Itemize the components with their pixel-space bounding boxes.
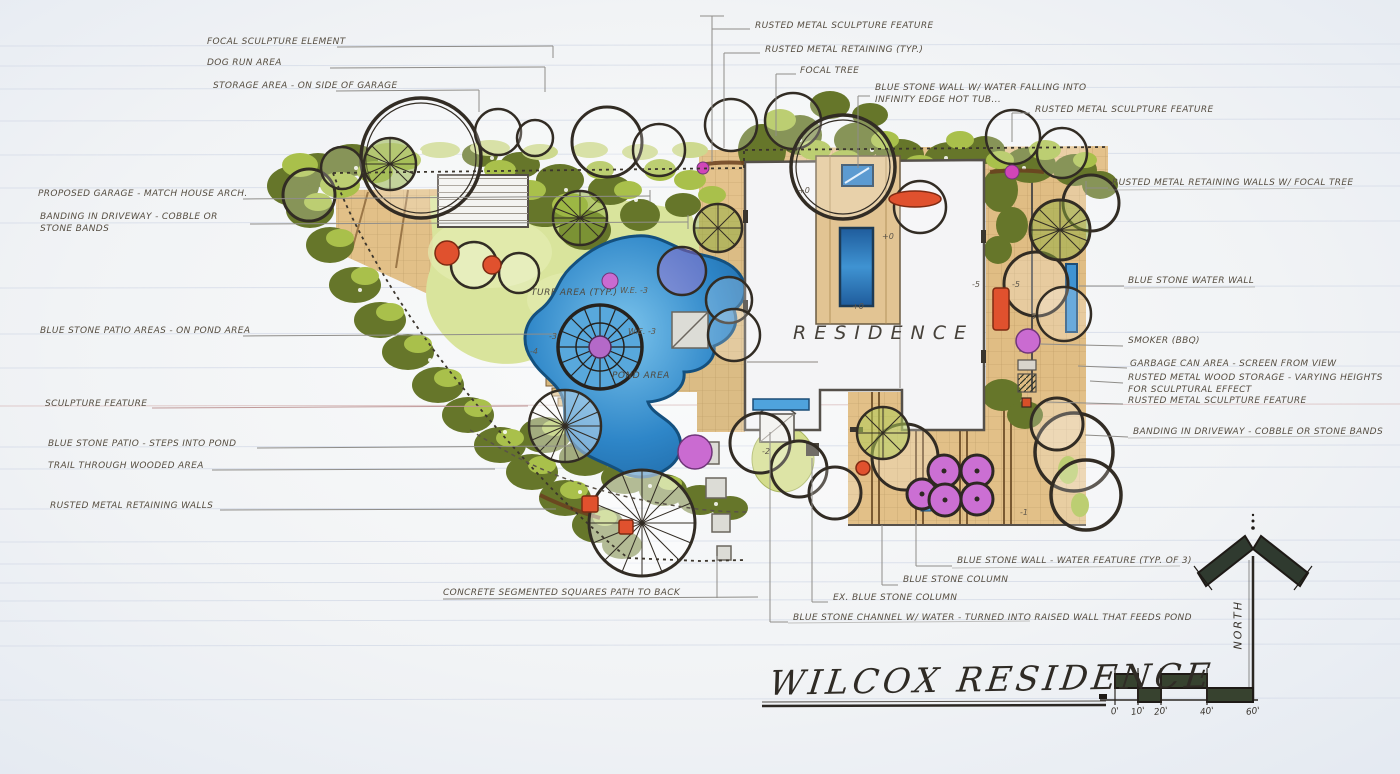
landscape-plan-sheet: { "title": { "text": "WILCOX RESIDENCE" … <box>0 0 1400 774</box>
annotation-rusted-sculpture-top: RUSTED METAL SCULPTURE FEATURE <box>755 21 934 33</box>
annotation-concrete-path: CONCRETE SEGMENTED SQUARES PATH TO BACK <box>443 588 680 600</box>
turf-area-label: TURF AREA (TYP.) <box>531 288 618 298</box>
annotation-focal-tree: FOCAL TREE <box>800 66 859 78</box>
annotation-ex-blue-stone-column: EX. BLUE STONE COLUMN <box>833 593 957 605</box>
annotation-rusted-retaining-typ: RUSTED METAL RETAINING (TYP.) <box>765 45 923 57</box>
annotation-sculpture-feature: SCULPTURE FEATURE <box>45 399 147 411</box>
annotation-blue-stone-channel: BLUE STONE CHANNEL W/ WATER - TURNED INT… <box>793 613 1192 625</box>
lap-pool <box>840 228 873 306</box>
annotation-focal-sculpture-element: FOCAL SCULPTURE ELEMENT <box>207 37 346 49</box>
annotation-trail-wooded-area: TRAIL THROUGH WOODED AREA <box>48 461 204 473</box>
annotation-proposed-garage: PROPOSED GARAGE - MATCH HOUSE ARCH. <box>38 189 248 201</box>
water-elevation-marker: W.E. -3 <box>628 327 656 336</box>
annotation-blue-stone-patio-areas: BLUE STONE PATIO AREAS - ON POND AREA <box>40 326 250 338</box>
sheet-title: WILCOX RESIDENCE <box>767 656 1216 704</box>
annotation-banding-driveway-left: BANDING IN DRIVEWAY - COBBLE OR STONE BA… <box>40 212 245 235</box>
elevation-marker: -4 <box>530 347 538 356</box>
annotation-rusted-wood-storage: RUSTED METAL WOOD STORAGE - VARYING HEIG… <box>1128 373 1383 396</box>
garbage-area-glyph <box>1018 360 1036 370</box>
residence-label: RESIDENCE <box>793 322 974 344</box>
annotation-garbage-can-area: GARBAGE CAN AREA - SCREEN FROM VIEW <box>1130 359 1337 371</box>
elevation-marker: -5 <box>972 280 980 289</box>
annotation-rusted-retaining-walls: RUSTED METAL RETAINING WALLS <box>50 501 213 513</box>
plan-sheet: FOCAL SCULPTURE ELEMENT DOG RUN AREA STO… <box>0 0 1400 774</box>
pond-area-label: POND AREA <box>612 371 670 381</box>
annotation-blue-stone-wall-water-feature: BLUE STONE WALL - WATER FEATURE (TYP. OF… <box>957 556 1192 568</box>
elevation-marker: -5 <box>1012 280 1020 289</box>
annotation-blue-stone-wall-hot-tub: BLUE STONE WALL W/ WATER FALLING INTO IN… <box>875 83 1095 106</box>
elevation-marker: -5 <box>1028 312 1036 321</box>
wood-storage-glyph <box>1018 374 1036 392</box>
water-elevation-marker: W.E. -3 <box>620 286 648 295</box>
elevation-marker: -1 <box>1020 508 1028 517</box>
annotation-smoker-bbq: SMOKER (BBQ) <box>1128 336 1200 348</box>
north-arrow-label: NORTH <box>1232 580 1245 650</box>
annotation-banding-driveway-right: BANDING IN DRIVEWAY - COBBLE OR STONE BA… <box>1133 427 1383 439</box>
elevation-marker: +0 <box>852 302 864 311</box>
elevation-marker: +0 <box>882 232 894 241</box>
sculpture-glyph <box>1022 398 1031 407</box>
annotation-blue-stone-column: BLUE STONE COLUMN <box>903 575 1008 587</box>
annotation-blue-stone-water-wall: BLUE STONE WATER WALL <box>1128 276 1254 288</box>
annotation-dog-run-area: DOG RUN AREA <box>207 58 282 70</box>
annotation-storage-area: STORAGE AREA - ON SIDE OF GARAGE <box>213 81 398 93</box>
annotation-rusted-sculpture-right: RUSTED METAL SCULPTURE FEATURE <box>1128 396 1307 408</box>
annotation-blue-stone-patio-steps: BLUE STONE PATIO - STEPS INTO POND <box>48 439 236 451</box>
elevation-marker: -3 <box>549 332 557 341</box>
water-channel-shape <box>753 399 809 410</box>
annotation-rusted-sculpture-topright: RUSTED METAL SCULPTURE FEATURE <box>1035 105 1214 117</box>
elevation-marker: -2 <box>762 447 770 456</box>
elevation-marker: +0 <box>798 186 810 195</box>
annotation-rusted-retaining-focal-tree: RUSTED METAL RETAINING WALLS W/ FOCAL TR… <box>1112 178 1353 190</box>
